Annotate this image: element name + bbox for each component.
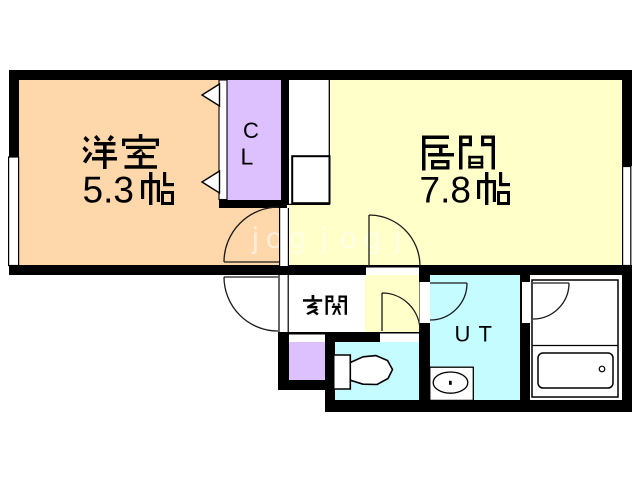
svg-text:j: j bbox=[251, 222, 259, 255]
svg-text:U: U bbox=[455, 322, 471, 347]
svg-text:C: C bbox=[243, 118, 259, 143]
svg-text:7.8: 7.8 bbox=[420, 170, 471, 211]
svg-text:g: g bbox=[289, 222, 306, 255]
svg-text:T: T bbox=[479, 322, 492, 347]
svg-text:L: L bbox=[241, 144, 254, 170]
svg-text:j: j bbox=[320, 222, 328, 255]
svg-text:5.3: 5.3 bbox=[83, 170, 134, 211]
svg-text:g: g bbox=[364, 222, 381, 255]
svg-text:o: o bbox=[340, 222, 357, 255]
svg-text:j: j bbox=[393, 222, 401, 255]
